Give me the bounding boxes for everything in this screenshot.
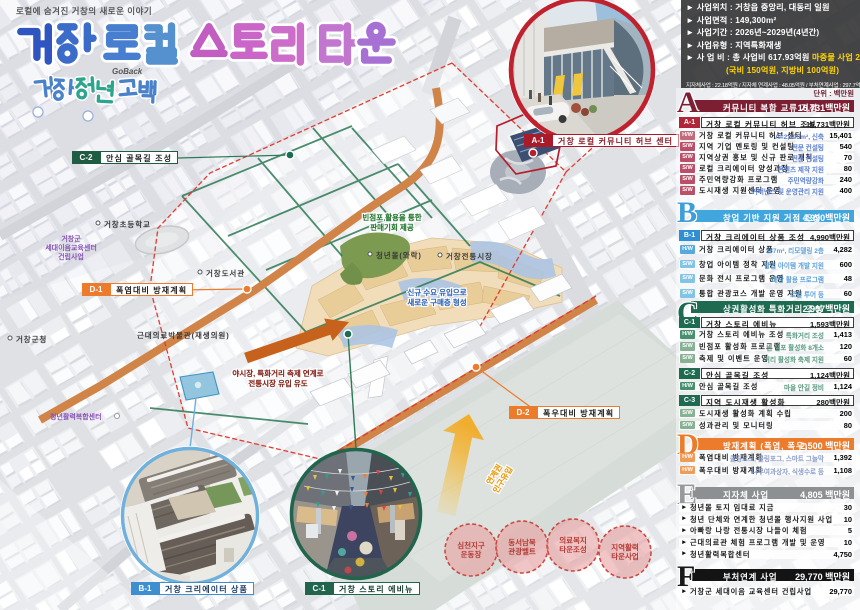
svg-text:GoBack: GoBack: [112, 67, 143, 76]
svg-text:빈점포 활용을 통한: 빈점포 활용을 통한: [362, 212, 421, 222]
svg-text:운동장: 운동장: [461, 549, 482, 559]
svg-text:근대의료박물관(재생의원): 근대의료박물관(재생의원): [137, 330, 230, 340]
svg-text:청년몰(와락): 청년몰(와락): [376, 250, 422, 260]
svg-text:타운조성: 타운조성: [559, 544, 587, 554]
svg-text:타운사업: 타운사업: [611, 551, 639, 561]
svg-text:판매기회 제공: 판매기회 제공: [370, 222, 414, 232]
svg-text:관광벨트: 관광벨트: [508, 546, 536, 556]
svg-text:거창도서관: 거창도서관: [206, 268, 245, 278]
svg-text:의료복지: 의료복지: [559, 535, 587, 545]
svg-text:동서남북: 동서남북: [508, 537, 536, 547]
svg-text:청년활력복합센터: 청년활력복합센터: [50, 412, 102, 421]
svg-text:세대이음교육센터: 세대이음교육센터: [45, 243, 97, 252]
svg-text:거창군청: 거창군청: [16, 334, 47, 344]
svg-text:심천지구: 심천지구: [457, 540, 485, 550]
svg-text:신규 수요 유입으로: 신규 수요 유입으로: [407, 287, 466, 297]
svg-text:전통시장 유입 유도: 전통시장 유입 유도: [248, 378, 307, 388]
svg-text:야시장, 특화거리 축제 연계로: 야시장, 특화거리 축제 연계로: [232, 368, 323, 378]
svg-text:거창군: 거창군: [61, 234, 81, 243]
svg-text:거창전통시장: 거창전통시장: [446, 251, 493, 261]
svg-text:새로운 구매층 형성: 새로운 구매층 형성: [407, 297, 466, 307]
svg-text:거창초등학교: 거창초등학교: [104, 219, 151, 229]
svg-text:건립사업: 건립사업: [58, 252, 84, 261]
svg-text:지역활력: 지역활력: [611, 542, 639, 552]
